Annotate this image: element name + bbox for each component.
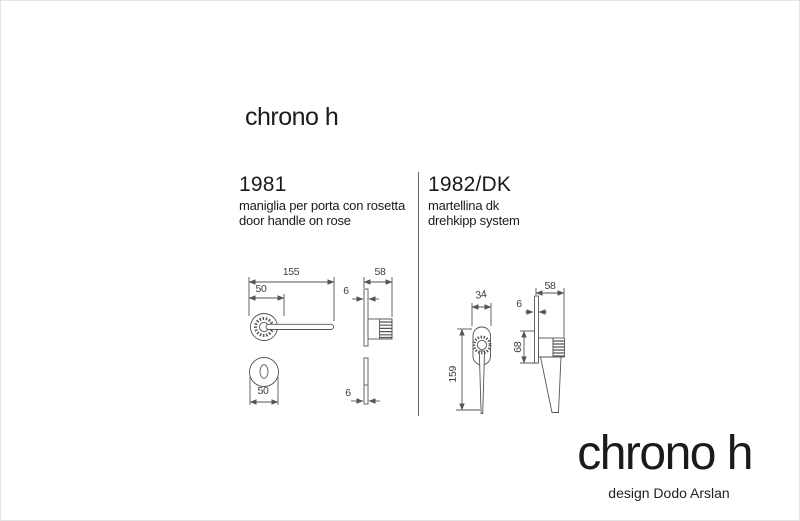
grip-side [539, 338, 554, 357]
drawing-1982dk-front-view [456, 303, 491, 414]
dim-label-50-escutcheon: 50 [250, 386, 276, 397]
brand-logotype: chrono h [577, 430, 752, 478]
dim-label-68: 68 [513, 331, 524, 363]
keyhole [260, 365, 268, 379]
handle-blade-side [541, 357, 562, 413]
dim-label-6-dk: 6 [514, 299, 524, 310]
catalog-page: chrono h 1981 maniglia per porta con ros… [0, 0, 800, 521]
handle-lever [266, 324, 334, 329]
drawing-1981-side-view [352, 277, 392, 346]
dim-label-6-bottom: 6 [343, 388, 353, 399]
dim-label-58: 58 [367, 267, 393, 278]
dim-label-159: 159 [448, 353, 459, 395]
dim-label-50-rose: 50 [249, 284, 273, 295]
rose-plate-side [364, 289, 368, 346]
rose-plate-side [535, 296, 539, 363]
designer-credit: design Dodo Arslan [584, 486, 754, 500]
drawing-1981-escutcheon-side [351, 358, 380, 404]
dim-label-6-top: 6 [341, 286, 351, 297]
dim-label-58-dk: 58 [537, 281, 563, 292]
drawing-1981-escutcheon-front [250, 358, 279, 406]
dim-label-155: 155 [277, 267, 305, 278]
handle-blade-front [479, 351, 484, 414]
drawing-1982dk-side-view [520, 288, 565, 413]
